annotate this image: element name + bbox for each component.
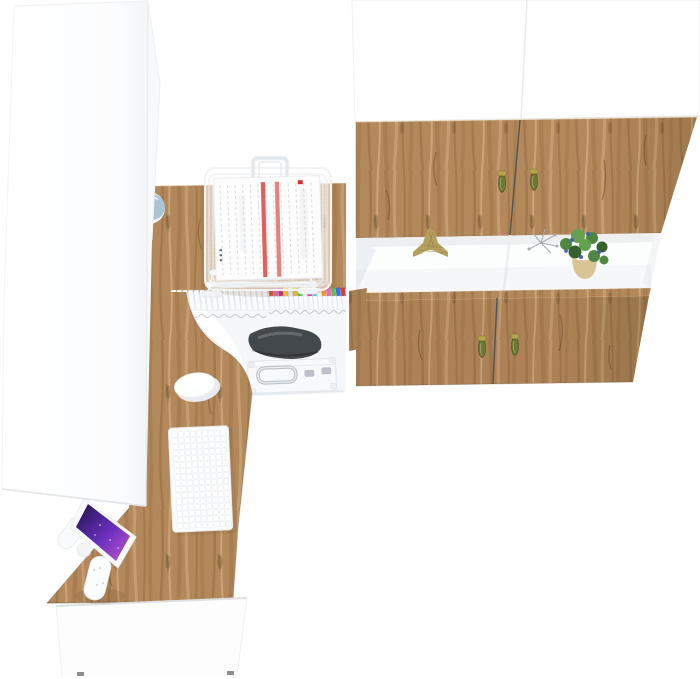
upper-left-door-handle-icon[interactable]	[498, 171, 506, 193]
keyboard-key	[196, 431, 201, 436]
keyboard-key	[192, 462, 197, 467]
keyboard-key	[184, 523, 189, 528]
keyboard-key	[216, 461, 221, 466]
keyboard-key	[182, 493, 187, 498]
keyboard-key	[220, 515, 225, 520]
briefcase-latch	[322, 368, 331, 374]
keyboard-key	[177, 505, 182, 510]
keyboard-key	[208, 522, 213, 527]
keyboard-key	[218, 491, 223, 496]
keyboard-key	[175, 481, 180, 486]
keyboard-key	[187, 480, 192, 485]
keyboard-key	[207, 510, 212, 515]
keyboard-key	[226, 521, 231, 526]
keyboard-key	[193, 468, 198, 473]
keyboard-key	[192, 456, 197, 461]
keyboard-key	[205, 479, 210, 484]
keyboard-key	[219, 509, 224, 514]
keyboard-key	[183, 505, 188, 510]
keyboard-key	[175, 487, 180, 492]
wardrobe-front-face	[2, 1, 148, 506]
keyboard-key	[199, 474, 204, 479]
keyboard-key	[204, 461, 209, 466]
keyboard-key	[188, 492, 193, 497]
keyboard-key	[191, 437, 196, 442]
keyboard-key	[190, 523, 195, 528]
keyboard-key	[174, 462, 179, 467]
desk-foot	[77, 672, 84, 676]
keyboard-key	[180, 456, 185, 461]
keyboard-key	[181, 474, 186, 479]
keyboard-key	[203, 437, 208, 442]
keyboard-key	[195, 516, 200, 521]
upper-right-door-handle-icon[interactable]	[530, 169, 538, 191]
keyboard-key	[188, 498, 193, 503]
keyboard-key	[175, 475, 180, 480]
keyboard-key	[201, 516, 206, 521]
keyboard-key	[221, 430, 226, 435]
keyboard-key	[222, 454, 227, 459]
keyboard-key	[185, 450, 190, 455]
keyboard-key	[200, 486, 205, 491]
keyboard-key	[185, 444, 190, 449]
keyboard-key	[187, 474, 192, 479]
keyboard-key	[182, 486, 187, 491]
keyboard-key	[198, 455, 203, 460]
keyboard-key	[183, 517, 188, 522]
keyboard-key	[222, 448, 227, 453]
keyboard-key	[182, 499, 187, 504]
keyboard-key	[201, 504, 206, 509]
keyboard-key	[215, 436, 220, 441]
keyboard-key	[210, 449, 215, 454]
keyboard-key	[179, 450, 184, 455]
keyboard-key	[176, 493, 181, 498]
keyboard[interactable]	[168, 426, 237, 537]
keyboard-key	[179, 438, 184, 443]
file-box-label	[341, 288, 346, 297]
keyboard-key	[219, 497, 224, 502]
keyboard-key	[173, 444, 178, 449]
keyboard-key	[197, 443, 202, 448]
scene-svg	[0, 0, 700, 679]
keyboard-key	[186, 462, 191, 467]
desk-foot	[227, 671, 234, 675]
keyboard-key	[188, 486, 193, 491]
keyboard-key	[223, 479, 228, 484]
keyboard-key	[202, 431, 207, 436]
keyboard-key	[200, 498, 205, 503]
keyboard-key	[193, 480, 198, 485]
keyboard-key	[201, 510, 206, 515]
documents	[211, 176, 325, 289]
keyboard-key	[224, 485, 229, 490]
keyboard-key	[212, 491, 217, 496]
keyboard-key	[218, 485, 223, 490]
keyboard-key	[194, 492, 199, 497]
keyboard-key	[194, 486, 199, 491]
keyboard-key	[203, 449, 208, 454]
keyboard-key	[206, 492, 211, 497]
keyboard-key	[214, 522, 219, 527]
keyboard-key	[221, 442, 226, 447]
keyboard-key	[199, 467, 204, 472]
keyboard-key	[205, 467, 210, 472]
keyboard-key	[197, 449, 202, 454]
keyboard-key	[198, 461, 203, 466]
keyboard-key	[219, 503, 224, 508]
wardrobe[interactable]	[2, 1, 160, 506]
keyboard-key	[217, 467, 222, 472]
keyboard-key	[173, 438, 178, 443]
keyboard-key	[216, 448, 221, 453]
keyboard-key	[210, 461, 215, 466]
keyboard-key	[221, 436, 226, 441]
keyboard-key	[214, 430, 219, 435]
lower-right-door-handle-icon[interactable]	[511, 334, 519, 356]
keyboard-key	[196, 522, 201, 527]
briefcase	[247, 357, 336, 393]
cabinet-upper-doors[interactable]	[356, 117, 697, 238]
keyboard-key	[217, 479, 222, 484]
keyboard-key	[208, 516, 213, 521]
file-box-label	[331, 288, 336, 297]
keyboard-key	[205, 473, 210, 478]
keyboard-key	[178, 523, 183, 528]
keyboard-key	[213, 503, 218, 508]
keyboard-key	[216, 454, 221, 459]
keyboard-key	[193, 474, 198, 479]
keyboard-key	[225, 503, 230, 508]
keyboard-key	[178, 432, 183, 437]
keyboard-key	[189, 504, 194, 509]
keyboard-key	[212, 485, 217, 490]
paper-red-chip	[298, 180, 303, 184]
furniture-render	[0, 0, 700, 679]
keyboard-key	[213, 510, 218, 515]
keyboard-key	[209, 443, 214, 448]
document-tray	[202, 158, 331, 297]
keyboard-key	[206, 485, 211, 490]
keyboard-key	[197, 437, 202, 442]
keyboard-key	[176, 499, 181, 504]
keyboard-key	[204, 455, 209, 460]
keyboard-key	[225, 497, 230, 502]
keyboard-key	[185, 438, 190, 443]
keyboard-key	[180, 468, 185, 473]
keyboard-key	[174, 456, 179, 461]
keyboard-key	[225, 509, 230, 514]
keyboard-key	[194, 498, 199, 503]
tray-foot	[202, 291, 222, 297]
keyboard-key	[223, 472, 228, 477]
keyboard-key	[210, 455, 215, 460]
keyboard-key	[186, 468, 191, 473]
keyboard-key	[206, 498, 211, 503]
keyboard-key	[183, 511, 188, 516]
briefcase-latch	[305, 370, 314, 376]
keyboard-key	[199, 480, 204, 485]
keyboard-key	[215, 442, 220, 447]
keyboard-key	[203, 443, 208, 448]
keyboard-key	[195, 504, 200, 509]
keyboard-key	[209, 436, 214, 441]
keyboard-key	[212, 497, 217, 502]
keyboard-key	[202, 522, 207, 527]
keyboard-key	[222, 460, 227, 465]
keyboard-key	[211, 479, 216, 484]
keyboard-key	[177, 511, 182, 516]
keyboard-key	[217, 473, 222, 478]
keyboard-key	[214, 516, 219, 521]
keyboard-key	[191, 449, 196, 454]
keyboard-key	[200, 492, 205, 497]
lower-left-door-handle-icon[interactable]	[478, 336, 486, 358]
keyboard-key	[186, 456, 191, 461]
keyboard-key	[190, 431, 195, 436]
file-box-label	[336, 288, 341, 297]
cabinet-lower-doors[interactable]	[356, 296, 649, 386]
keyboard-key	[172, 432, 177, 437]
keyboard-key	[224, 491, 229, 496]
keyboard-key	[189, 511, 194, 516]
keyboard-key	[211, 473, 216, 478]
keyboard-key	[177, 517, 182, 522]
keyboard-key	[195, 510, 200, 515]
keyboard-key	[207, 504, 212, 509]
keyboard-key	[211, 467, 216, 472]
keyboard-key	[184, 431, 189, 436]
desk-front-panel	[56, 598, 247, 676]
keyboard-key	[191, 443, 196, 448]
keyboard-key	[173, 450, 178, 455]
keyboard-key	[226, 515, 231, 520]
keyboard-key	[220, 521, 225, 526]
keyboard-key	[174, 468, 179, 473]
keyboard-key	[179, 444, 184, 449]
keyboard-key	[180, 462, 185, 467]
keyboard-key	[189, 517, 194, 522]
keyboard-key	[223, 466, 228, 471]
keyboard-key	[208, 430, 213, 435]
keyboard-key	[181, 480, 186, 485]
